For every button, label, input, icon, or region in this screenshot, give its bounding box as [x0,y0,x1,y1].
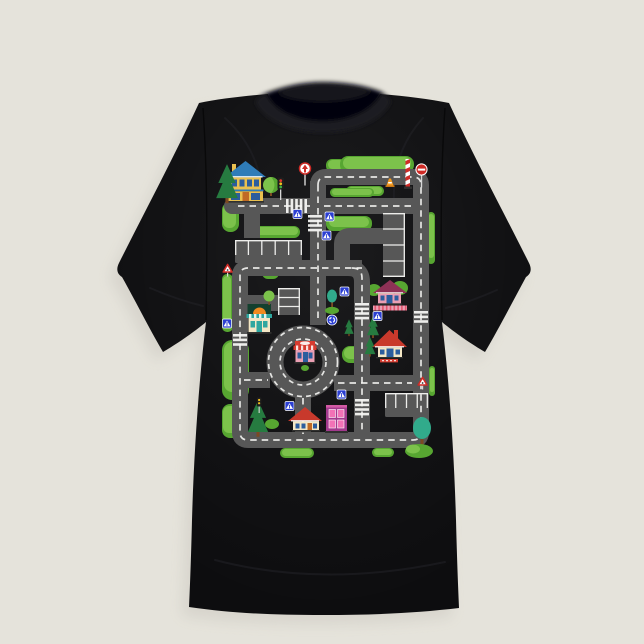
purple-building [325,405,348,433]
parking-lot-right [383,213,405,277]
red-white-banner [380,359,398,362]
hedge [372,448,394,457]
tshirt-mockup [0,0,644,644]
hedge [330,188,374,197]
bush [301,365,309,371]
bush [265,419,279,429]
zebra-crossing [414,311,428,323]
roundabout-sign [327,315,337,325]
hedge [280,448,314,458]
zebra-crossing [233,334,247,346]
striped-fence [373,306,407,311]
parking-lot-center-left [278,288,300,315]
product-photo [0,0,644,644]
hedge [429,366,435,396]
parking-lot-top-left [235,240,302,263]
bakery-shop [247,304,273,334]
